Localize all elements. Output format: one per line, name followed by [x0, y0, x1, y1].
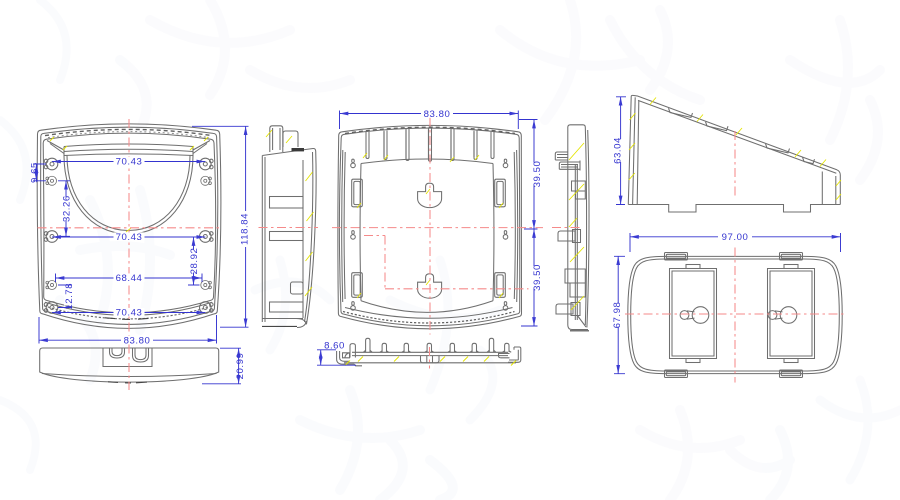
svg-text:83.80: 83.80 [124, 336, 151, 347]
svg-text:12.78: 12.78 [64, 283, 75, 310]
svg-text:20.99: 20.99 [235, 353, 246, 380]
svg-text:39.50: 39.50 [532, 161, 543, 188]
svg-text:32.26: 32.26 [62, 195, 73, 222]
svg-text:63.04: 63.04 [613, 137, 624, 164]
svg-text:28.92: 28.92 [189, 248, 200, 275]
svg-text:68.44: 68.44 [116, 273, 143, 284]
svg-text:67.98: 67.98 [612, 302, 623, 329]
svg-text:39.50: 39.50 [532, 264, 543, 291]
svg-text:70.43: 70.43 [116, 232, 143, 243]
svg-text:70.43: 70.43 [116, 308, 143, 319]
svg-text:118.84: 118.84 [240, 213, 251, 245]
svg-text:8.60: 8.60 [324, 340, 345, 351]
svg-text:97.00: 97.00 [722, 232, 749, 243]
svg-text:9.65: 9.65 [29, 162, 40, 183]
svg-text:70.43: 70.43 [116, 157, 143, 168]
svg-text:83.80: 83.80 [424, 109, 451, 120]
